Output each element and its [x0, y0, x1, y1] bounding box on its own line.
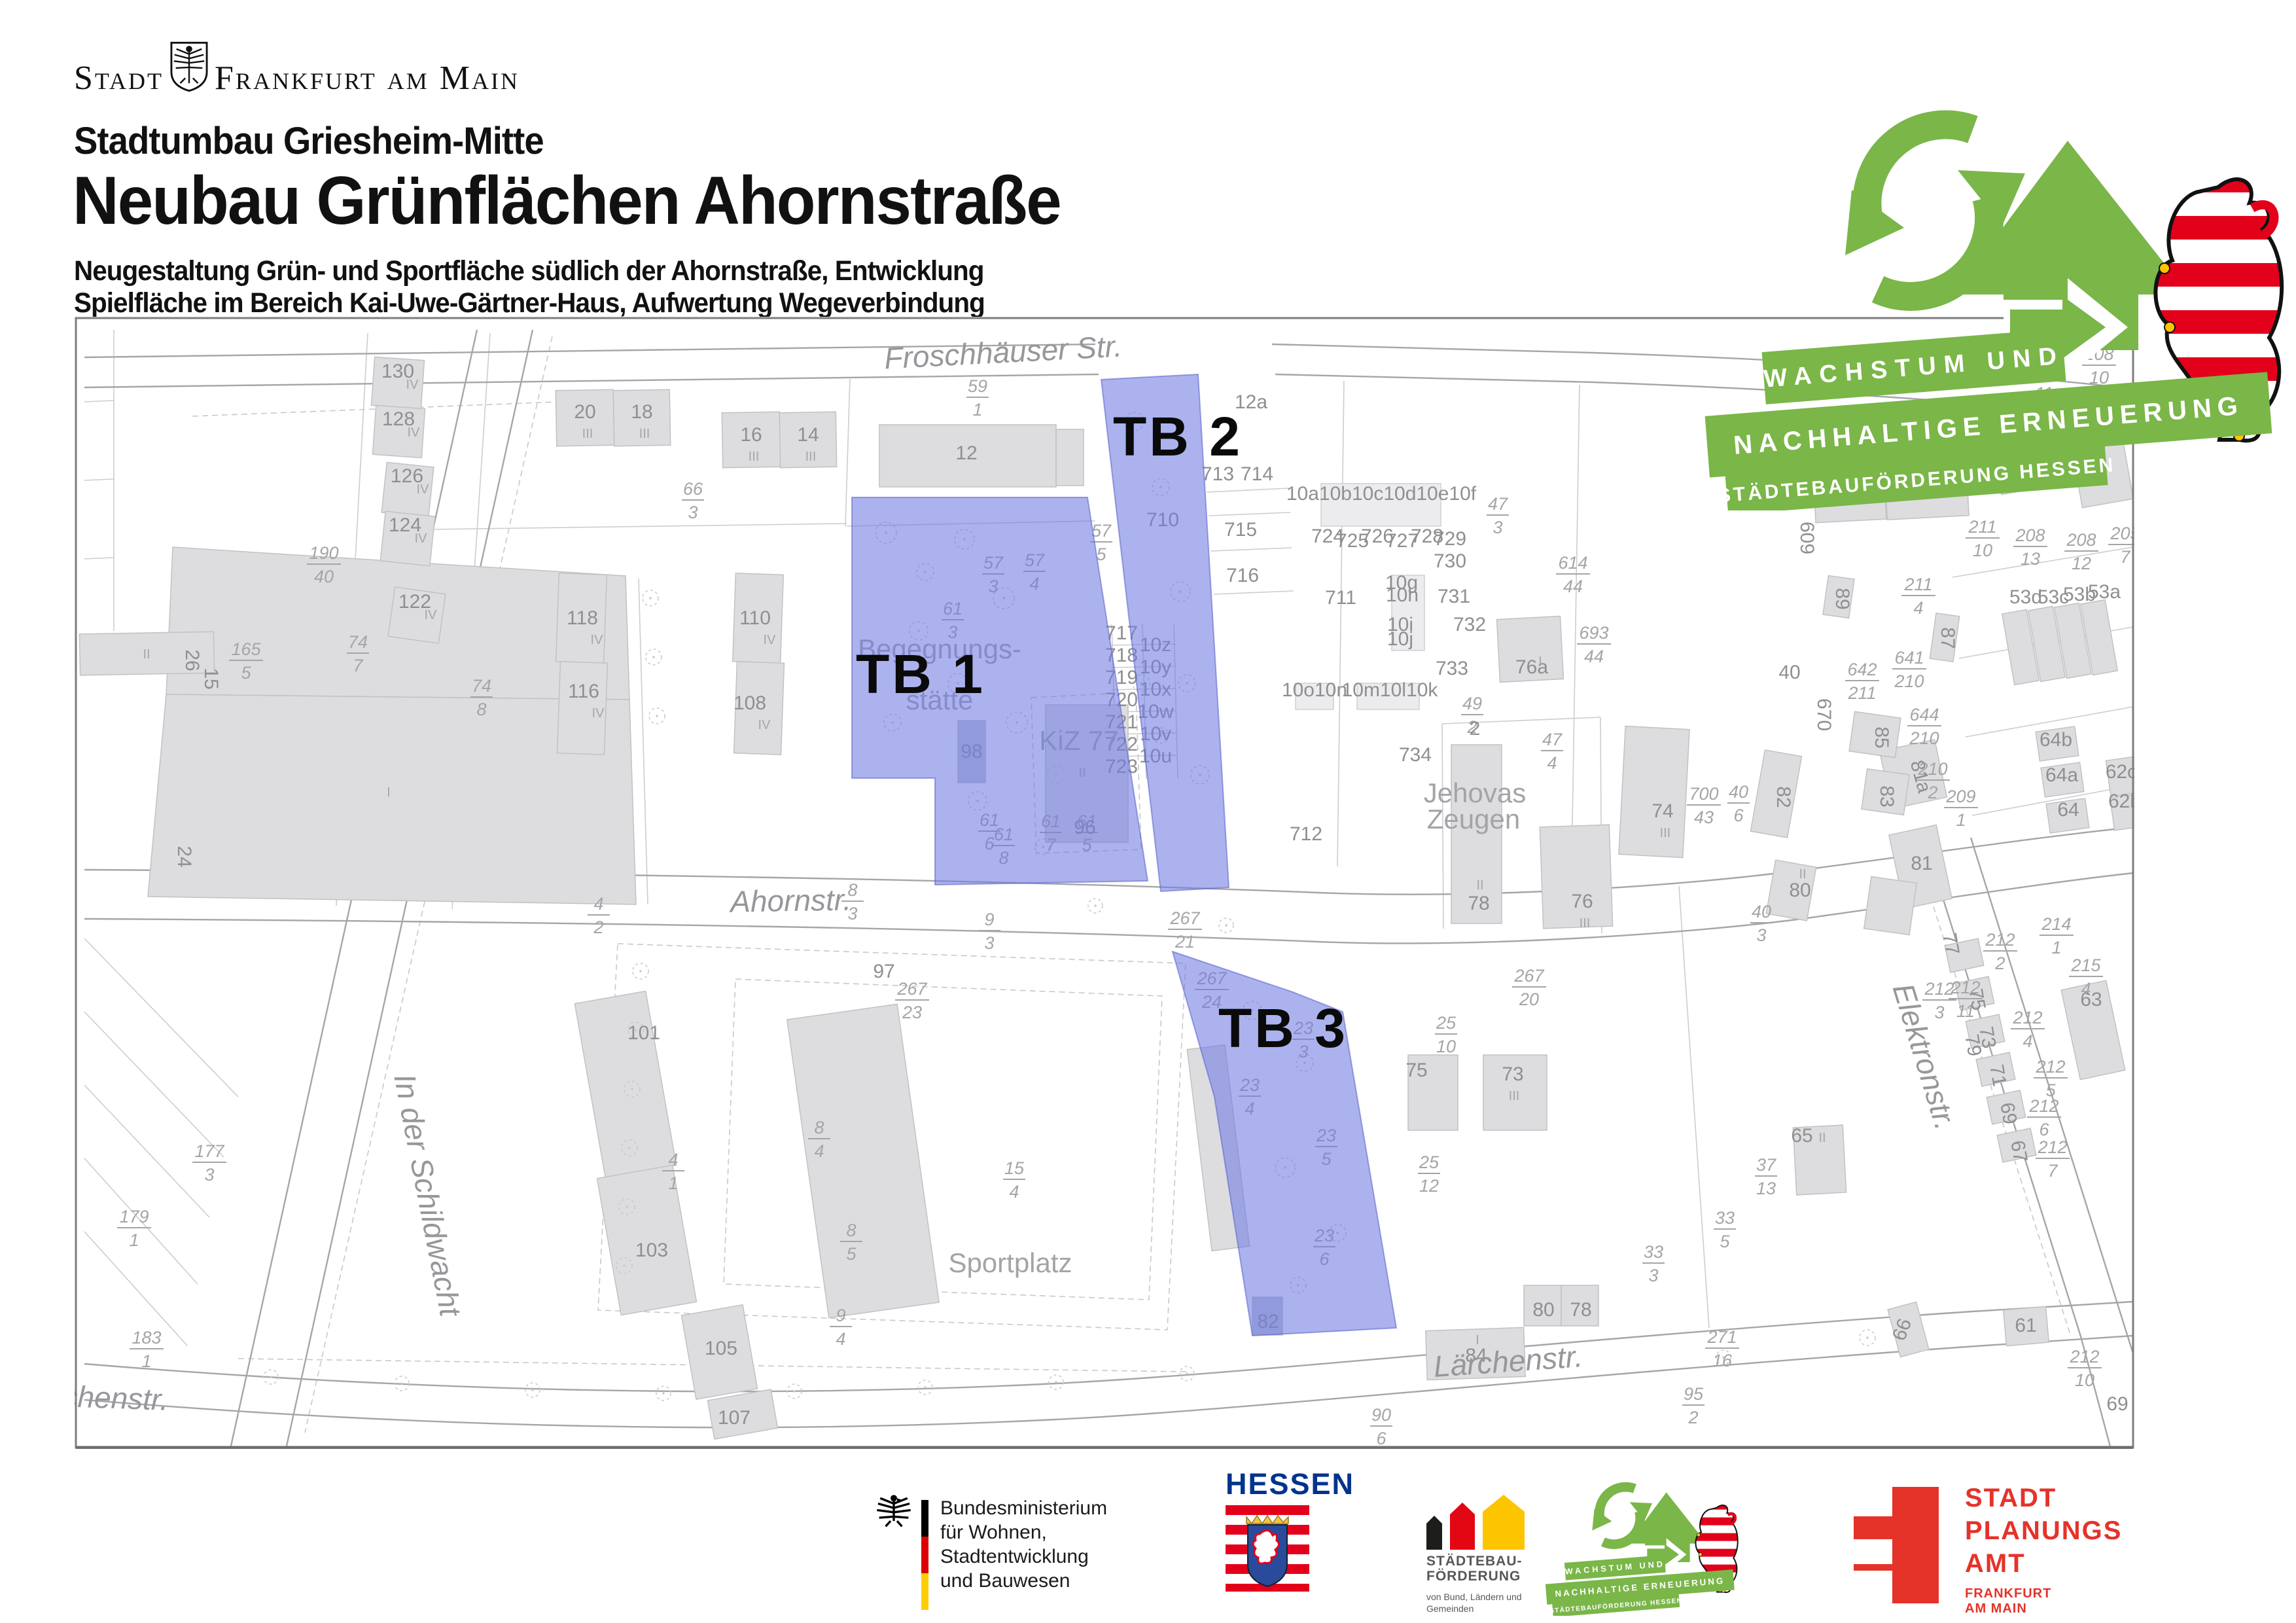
- parcel-number: 74: [348, 632, 368, 652]
- house-number: 89: [1831, 588, 1853, 609]
- stbf-line1: STÄDTEBAU-: [1426, 1554, 1523, 1569]
- house-number: 116: [568, 681, 599, 702]
- parcel-number: 183: [132, 1328, 161, 1347]
- parcel-number: 179: [119, 1207, 149, 1226]
- parcel-number: 40: [1729, 782, 1748, 802]
- house-number: 73: [1502, 1063, 1523, 1085]
- parcel-number: 644: [1909, 705, 1939, 724]
- house-number: 61: [2015, 1315, 2036, 1336]
- storey-count: I: [1475, 1333, 1479, 1347]
- parcel-number: 4: [814, 1141, 824, 1161]
- city-logo-word-name: Frankfurt am Main: [215, 62, 520, 96]
- parcel-number: 1: [972, 400, 982, 419]
- parcel-number: 8: [476, 700, 486, 719]
- storey-count: III: [582, 427, 593, 441]
- bund-ministry-logo: Bundesministerium für Wohnen, Stadtentwi…: [875, 1491, 1189, 1615]
- house-number: 80: [1789, 880, 1810, 901]
- parcel-number: 5: [846, 1244, 857, 1264]
- storey-count: IV: [415, 531, 428, 546]
- parcel-number: 4: [593, 894, 603, 914]
- parcel-number: 165: [231, 639, 261, 659]
- parcel-number: 10: [1436, 1037, 1456, 1056]
- parcel-number: 10: [1973, 541, 1992, 560]
- parcel-number: 4: [2022, 1031, 2032, 1051]
- zone-label-tb3: TB 3: [1218, 997, 1348, 1059]
- house-number: 76a: [1515, 656, 1548, 678]
- parcel-number: 40: [1752, 902, 1771, 921]
- building: [1056, 429, 1084, 486]
- house-number: 75: [1405, 1060, 1427, 1081]
- storey-count: IV: [592, 706, 605, 721]
- parcel-number: 212: [2028, 1096, 2058, 1116]
- house-number: 26: [181, 649, 203, 671]
- house-number: 729: [1434, 528, 1466, 550]
- house-number: 118: [567, 607, 598, 629]
- subtitle-line1: Neugestaltung Grün- und Sportfläche südl…: [74, 255, 985, 287]
- ministry-name: Bundesministerium für Wohnen, Stadtentwi…: [940, 1496, 1189, 1593]
- program-logo-footer: WACHSTUM UNDNACHHALTIGE ERNEUERUNGSTÄDTE…: [1544, 1476, 1740, 1616]
- stbf-line2: FÖRDERUNG: [1426, 1569, 1521, 1584]
- page-title-line2: Neubau Grünflächen Ahornstraße: [73, 162, 1061, 240]
- house-number: 64b: [2040, 729, 2072, 751]
- parcel-number: 43: [1694, 808, 1714, 827]
- building: [1540, 825, 1612, 929]
- house-number: 731: [1438, 586, 1470, 607]
- house-number: 18: [631, 401, 652, 423]
- parcel-number: 267: [896, 979, 927, 999]
- parcel-number: 693: [1579, 623, 1608, 643]
- house-number: 97: [873, 961, 894, 982]
- storey-count: III: [805, 450, 817, 464]
- parcel-number: 267: [1169, 908, 1200, 928]
- house-number: 734: [1399, 744, 1432, 766]
- stbf-sub2: Gemeinden: [1426, 1603, 1474, 1614]
- tree-center: [639, 970, 642, 972]
- parcel-number: 211: [1968, 517, 1996, 537]
- spa-glyph-arm1: [1854, 1516, 1907, 1539]
- house-number: 69: [2106, 1393, 2128, 1415]
- house-number: 78: [1468, 893, 1489, 914]
- parcel-number: 210: [1909, 728, 1939, 748]
- parcel-number: 700: [1689, 784, 1718, 804]
- parcel-number: 208: [2015, 526, 2045, 545]
- parcel-number: 1: [129, 1230, 139, 1250]
- house-number: 76: [1571, 891, 1593, 912]
- house-number: 105: [705, 1338, 737, 1359]
- parcel-number: 33: [1644, 1242, 1663, 1262]
- spa-line2: PLANUNGS: [1965, 1514, 2122, 1547]
- house-number: 110: [739, 607, 771, 629]
- tree-center: [924, 1386, 927, 1389]
- house-number: 64: [2057, 799, 2079, 821]
- street-name: chenstr.: [75, 1379, 169, 1417]
- house-number: 670: [1813, 698, 1835, 731]
- house-number: 67: [2006, 1139, 2031, 1164]
- parcel-number: 90: [1371, 1405, 1391, 1425]
- house-number: 80: [1532, 1299, 1554, 1321]
- tree-center: [1225, 924, 1227, 927]
- subtitle-line2: Spielfläche im Bereich Kai-Uwe-Gärtner-H…: [74, 287, 985, 319]
- frankfurt-city-logo: Stadt Frankfurt am Main: [74, 43, 520, 96]
- storey-count: II: [143, 647, 150, 662]
- parcel-number: 5: [241, 663, 251, 683]
- parcel-number: 40: [314, 567, 334, 586]
- zone-label-tb1: TB 1: [856, 643, 985, 705]
- parcel-number: 4: [1913, 598, 1923, 618]
- parcel-number: 209: [1945, 787, 1975, 806]
- parcel-number: 44: [1584, 647, 1604, 666]
- storey-count: IV: [417, 482, 430, 497]
- parcel-number: 37: [1756, 1155, 1776, 1175]
- parcel-number: 23: [902, 1003, 922, 1022]
- house-number: 75: [1964, 987, 1989, 1012]
- stbf-sub1: von Bund, Ländern und: [1426, 1592, 1522, 1602]
- tree-center: [270, 1376, 272, 1378]
- parcel-number: 215: [2070, 955, 2101, 975]
- spa-sub: FRANKFURT AM MAIN: [1965, 1586, 2051, 1616]
- parcel-number: 33: [1715, 1208, 1735, 1228]
- house-number: 62b: [2108, 791, 2134, 812]
- parcel-number: 74: [472, 676, 491, 696]
- house-number: 715: [1224, 519, 1257, 541]
- parcel-number: 95: [1684, 1384, 1704, 1404]
- parcel-number: 3: [1648, 1266, 1658, 1285]
- tree-center: [623, 1264, 626, 1267]
- storey-count: II: [1476, 878, 1483, 893]
- parcel-number: 1: [668, 1173, 678, 1193]
- page-subtitle: Neugestaltung Grün- und Sportfläche südl…: [74, 255, 985, 319]
- house-number: 64a: [2045, 764, 2078, 786]
- house-number: 24: [173, 846, 195, 867]
- place-label: Zeugen: [1427, 804, 1520, 834]
- house-number: 714: [1241, 463, 1273, 485]
- city-logo-word-stadt: Stadt: [74, 62, 164, 96]
- parcel-number: 3: [984, 933, 994, 953]
- parcel-number: 9: [984, 910, 994, 929]
- parcel-number: 212: [2037, 1137, 2067, 1157]
- house-number: 63: [2080, 989, 2102, 1010]
- parcel-number: 21: [1174, 932, 1195, 952]
- storey-count: IV: [758, 718, 771, 732]
- parcel-number: 2: [1687, 1408, 1698, 1427]
- place-label: Sportplatz: [948, 1247, 1072, 1278]
- flag-bar-gold: [921, 1573, 928, 1610]
- parcel-number: 7: [2120, 547, 2130, 567]
- hessen-logo: HESSEN: [1226, 1467, 1354, 1595]
- ministry-line1: Bundesministerium: [940, 1496, 1189, 1520]
- parcel-number: 212: [1985, 930, 2015, 950]
- house-number: 62c: [2106, 761, 2134, 783]
- house-number: 83: [1876, 785, 1898, 807]
- parcel-number: 7: [2047, 1161, 2058, 1181]
- tree-center: [1055, 1381, 1057, 1383]
- page-title-line1: Stadtumbau Griesheim-Mitte: [74, 119, 544, 163]
- house-number: 10h: [1386, 584, 1419, 606]
- parcel-number: 642: [1847, 660, 1877, 679]
- parcel-number: 177: [194, 1141, 224, 1161]
- houses-icon: [1426, 1495, 1526, 1550]
- ministry-line2: für Wohnen, Stadtentwicklung: [940, 1520, 1189, 1569]
- parcel-number: 212: [2035, 1057, 2065, 1077]
- house-number: 81: [1911, 853, 1932, 874]
- house-number: 10o10n: [1282, 679, 1347, 701]
- program-logo-top: WACHSTUM UNDNACHHALTIGE ERNEUERUNGSTÄDTE…: [1701, 92, 2290, 510]
- parcel-number: 3: [1756, 925, 1766, 945]
- house-number: 40: [1778, 662, 1800, 683]
- spa-line1: STADT: [1965, 1482, 2122, 1514]
- parcel-number: 4: [668, 1150, 678, 1169]
- tree-center: [400, 1382, 403, 1385]
- flag-bar-black: [921, 1500, 928, 1537]
- parcel-number: 8: [814, 1118, 824, 1137]
- parcel-number: 9: [836, 1306, 845, 1325]
- building: [1864, 877, 1916, 935]
- parcel-number: 205: [2110, 524, 2134, 543]
- house-number: 733: [1436, 658, 1468, 679]
- house-number: 53a: [2088, 581, 2121, 603]
- tree-center: [793, 1390, 796, 1393]
- house-number: 730: [1434, 550, 1466, 572]
- parcel-number: 211: [1903, 575, 1932, 594]
- house-number: 77: [1938, 931, 1963, 957]
- federal-eagle-icon: [875, 1492, 913, 1535]
- house-number: 69: [1996, 1101, 2021, 1126]
- parcel-number: 66: [683, 479, 703, 499]
- parcel-number: 212: [2012, 1008, 2042, 1027]
- parcel-number: 13: [1756, 1179, 1776, 1198]
- parcel-number: 4: [1009, 1182, 1019, 1202]
- parcel-number: 4: [1547, 753, 1557, 773]
- parcel-number: 212: [1924, 979, 1954, 999]
- storey-count: II: [1818, 1131, 1826, 1145]
- tree-center: [1186, 1372, 1188, 1375]
- building: [1619, 726, 1689, 858]
- storey-count: III: [1660, 826, 1671, 840]
- spa-wordmark: STADT PLANUNGS AMT: [1965, 1482, 2122, 1580]
- storey-count: III: [639, 427, 650, 441]
- parcel-number: 3: [1492, 518, 1502, 537]
- parcel-number: 4: [836, 1329, 845, 1349]
- tree-center: [652, 656, 655, 658]
- parcel-number: 15: [1004, 1158, 1025, 1178]
- street-name: Ahornstr.: [728, 882, 852, 918]
- storey-count: II: [1799, 867, 1806, 882]
- hessen-flag-icon: [1226, 1505, 1309, 1592]
- house-number: 71: [1985, 1063, 2010, 1088]
- parcel-number: 5: [1720, 1232, 1730, 1251]
- frankfurt-eagle-icon: [170, 41, 208, 96]
- house-number: 82: [1773, 786, 1794, 808]
- tree-center: [1866, 1336, 1869, 1339]
- parcel-number: 44: [1563, 577, 1583, 596]
- parcel-number: 3: [1934, 1003, 1944, 1022]
- storey-count: III: [1509, 1089, 1520, 1103]
- tree-center: [626, 1205, 628, 1208]
- house-number: 108: [733, 692, 766, 714]
- parcel-number: 1: [141, 1351, 151, 1371]
- parcel-number: 47: [1542, 730, 1563, 749]
- house-number: 712: [1290, 823, 1322, 845]
- parcel-number: 25: [1436, 1013, 1457, 1033]
- storey-count: III: [1580, 916, 1591, 931]
- tree-center: [662, 1392, 665, 1395]
- tree-center: [631, 1088, 633, 1090]
- hessen-wordmark: HESSEN: [1226, 1467, 1354, 1501]
- house-number: 10j: [1387, 628, 1413, 650]
- house-number: 716: [1226, 565, 1259, 586]
- house-number: 10m10l10k: [1342, 679, 1439, 701]
- tree-center: [628, 1147, 631, 1149]
- house-number: 73: [1975, 1025, 2000, 1050]
- parcel-number: 7: [353, 656, 363, 675]
- storey-count: IV: [764, 633, 777, 647]
- house-number: 732: [1453, 614, 1486, 635]
- parcel-number: 3: [688, 503, 698, 522]
- parcel-number: 6: [1376, 1429, 1386, 1448]
- house-number: 107: [718, 1407, 751, 1429]
- parcel-number: 3: [204, 1165, 214, 1185]
- spa-glyph-bar: [1892, 1487, 1939, 1603]
- parcel-number: 16: [1712, 1351, 1733, 1370]
- house-number: 711: [1325, 587, 1356, 609]
- tree-center: [531, 1389, 534, 1391]
- spa-glyph-arm2: [1854, 1564, 1907, 1571]
- parcel-number: 212: [2069, 1347, 2099, 1366]
- house-number: 74: [1651, 800, 1673, 822]
- parcel-number: 210: [1894, 671, 1924, 691]
- parcel-number: 1: [2051, 938, 2061, 957]
- parcel-number: 2: [593, 918, 603, 937]
- house-number: 12: [955, 442, 977, 464]
- parcel-number: 1: [1956, 810, 1966, 830]
- parcel-number: 2: [1994, 954, 2005, 973]
- house-number: 14: [797, 424, 819, 446]
- parcel-number: 12: [2072, 554, 2091, 573]
- parcel-number: 8: [846, 1221, 856, 1240]
- parcel-number: 10: [2075, 1370, 2094, 1390]
- house-number: 20: [574, 401, 595, 423]
- spa-line3: AMT: [1965, 1547, 2122, 1580]
- storey-count: IV: [408, 425, 421, 440]
- parcel-number: 25: [1419, 1152, 1439, 1172]
- parcel-number: 271: [1706, 1327, 1737, 1347]
- parcel-number: 12: [1419, 1176, 1439, 1196]
- parcel-number: 190: [309, 543, 338, 563]
- house-number: 101: [627, 1022, 660, 1044]
- parcel-number: 13: [2021, 549, 2040, 569]
- parcel-number: 208: [2066, 530, 2096, 550]
- parcel-number: 214: [2041, 914, 2071, 934]
- parcel-number: 211: [1847, 683, 1876, 703]
- storey-count: I: [1538, 654, 1542, 669]
- tree-center: [656, 715, 658, 717]
- house-number: 2: [1470, 718, 1481, 740]
- flag-bar-red: [921, 1537, 928, 1573]
- parcel-number: 267: [1513, 966, 1544, 986]
- storey-count: IV: [406, 378, 419, 392]
- tree-center: [1094, 904, 1097, 907]
- parcel-number: 47: [1488, 494, 1508, 514]
- zone-label-tb2: TB 2: [1113, 406, 1243, 467]
- parcel-number: 6: [1733, 806, 1744, 825]
- house-number: 16: [740, 424, 762, 446]
- house-number: 103: [635, 1240, 668, 1261]
- parcel-number: 59: [968, 376, 987, 396]
- parcel-number: 641: [1894, 648, 1924, 668]
- storey-count: IV: [591, 633, 604, 647]
- storey-count: I: [387, 785, 391, 800]
- house-number: 85: [1871, 726, 1892, 748]
- house-number: 65: [1791, 1125, 1812, 1147]
- house-number: 87: [1937, 627, 1958, 649]
- parcel-number: 614: [1558, 553, 1587, 573]
- house-number: 609: [1796, 522, 1818, 554]
- tree-center: [649, 597, 652, 599]
- ministry-line3: und Bauwesen: [940, 1569, 1189, 1593]
- parcel-number: 49: [1462, 694, 1482, 713]
- parcel-number: 6: [2039, 1120, 2049, 1139]
- storey-count: IV: [425, 608, 438, 622]
- parcel-number: 20: [1519, 990, 1539, 1009]
- storey-count: III: [749, 450, 760, 464]
- house-number: 10a10b10c10d10e10f: [1286, 483, 1477, 505]
- house-number: 78: [1570, 1299, 1591, 1321]
